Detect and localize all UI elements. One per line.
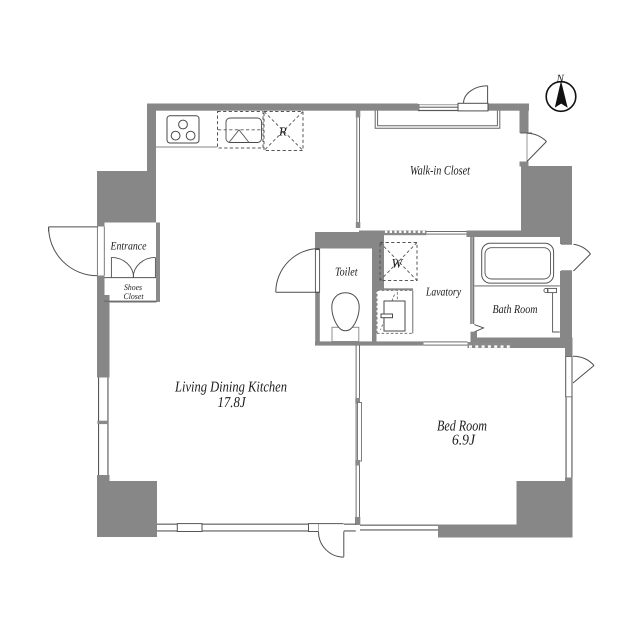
svg-text:Entrance: Entrance [110,241,147,253]
svg-text:R: R [278,125,287,139]
svg-text:Lavatory: Lavatory [425,285,461,299]
svg-text:17.8J: 17.8J [218,395,247,411]
svg-text:Walk-in Closet: Walk-in Closet [410,163,470,178]
svg-text:W: W [392,256,404,271]
svg-text:Living Dining Kitchen: Living Dining Kitchen [174,380,287,396]
svg-text:6.9J: 6.9J [452,433,476,449]
svg-text:Closet: Closet [124,291,145,301]
svg-text:Bath Room: Bath Room [493,302,538,316]
svg-text:N: N [556,73,565,85]
svg-text:Toilet: Toilet [335,265,358,279]
